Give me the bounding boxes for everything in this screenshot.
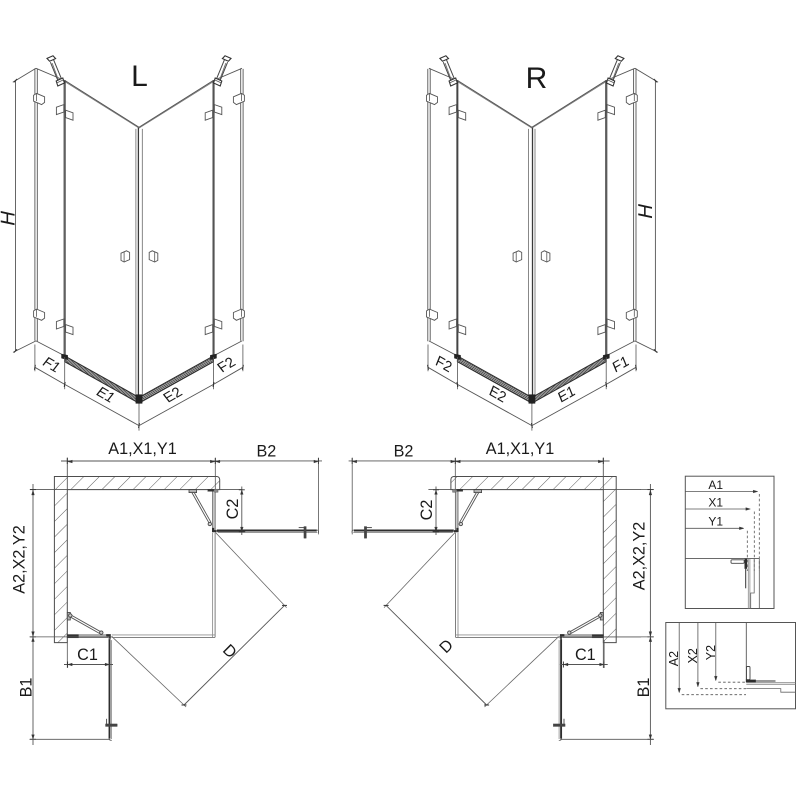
svg-text:C2: C2: [224, 499, 242, 520]
svg-text:Y1: Y1: [708, 515, 723, 529]
svg-text:F1: F1: [611, 353, 632, 376]
svg-text:A2,X2,Y2: A2,X2,Y2: [631, 522, 649, 590]
svg-text:B1: B1: [635, 678, 653, 698]
svg-text:H: H: [635, 202, 657, 221]
svg-text:C2: C2: [418, 500, 436, 521]
svg-text:D: D: [219, 641, 240, 662]
svg-text:X2: X2: [686, 648, 700, 663]
svg-text:A2: A2: [667, 651, 681, 666]
svg-text:F2: F2: [433, 353, 454, 376]
svg-text:Y2: Y2: [704, 645, 718, 660]
svg-text:C1: C1: [575, 646, 596, 664]
svg-text:A1,X1,Y1: A1,X1,Y1: [486, 440, 554, 458]
svg-text:B2: B2: [256, 443, 276, 461]
svg-text:F1: F1: [39, 355, 64, 376]
svg-text:B2: B2: [394, 443, 414, 461]
svg-text:H: H: [0, 209, 19, 228]
svg-text:B1: B1: [18, 678, 36, 698]
svg-text:R: R: [526, 62, 548, 95]
svg-text:X1: X1: [708, 495, 723, 509]
svg-text:A2,X2,Y2: A2,X2,Y2: [11, 525, 29, 593]
svg-text:D: D: [436, 636, 457, 657]
svg-text:A1: A1: [708, 478, 723, 492]
svg-text:L: L: [131, 60, 148, 93]
svg-text:A1,X1,Y1: A1,X1,Y1: [108, 440, 176, 458]
svg-text:F2: F2: [215, 355, 240, 376]
svg-text:C1: C1: [77, 646, 98, 664]
